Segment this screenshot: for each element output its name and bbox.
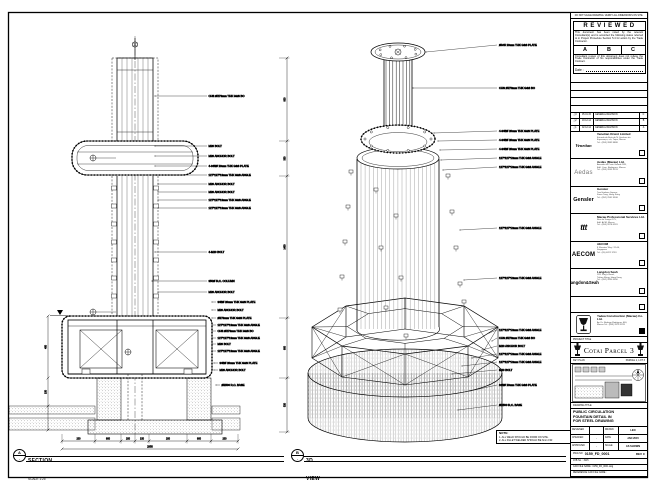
section-marker-letter: A [18,450,21,455]
clip-angle [338,308,342,311]
consultant-logo-text: ttt [580,223,587,232]
date-label: Date : [575,68,584,72]
status-checkbox [639,260,645,266]
bolt-hole [430,138,432,140]
section-callout-label: 4-M20 BOLT [209,250,225,254]
info-label: DATE [604,435,619,442]
reviewed-date-row: Date : [574,65,645,73]
info-value: AS SHOWN [619,443,647,450]
drawing-sheet: 2008002001502008002002950800350145060052… [0,0,650,488]
consultant-address: Tel : (65) 6222 3733 [597,252,646,255]
goblet-logo-icon [576,315,591,334]
dimension-value: 450 [45,344,48,349]
consultant-logo-text: Aedas [574,170,593,176]
consultant-block: VenetianVenetian Orient LimitedEstrada d… [571,132,647,160]
iso-title: 3D VIEW [306,458,320,482]
section-callout-label: M20 ANCHOR BOLT [209,290,235,294]
revision-mark: △1 [571,126,580,131]
key-plan [571,364,647,403]
dimension-value: 200 [77,438,82,441]
callout-leader [482,346,497,350]
section-callout-label: CHS Ø273mm THK G&S BO [218,329,255,333]
scale-warning-note: DO NOT SCALE DRAWING. VERIFY ALL DIMENSI… [571,13,647,19]
section-callout-label: M20 BOLT [218,342,232,346]
section-marker: A - [13,449,26,462]
consultant-address: Tel : (852) 2830 3500 [597,279,646,282]
dimension-value: 800 [106,438,111,441]
iso-callout-label: 4-345Ø 20mm THK G&S PLATE [499,129,539,133]
info-value [590,427,604,434]
status-option-a: A [574,46,597,54]
consultant-block: AedasAedas (Macau) Ltd.Avenida da Praia … [571,159,647,187]
section-callout-label: 127*127*13mm THK G&S ANGLE [218,323,261,327]
consultant-empty-block [571,297,647,313]
revision-blank-rows [571,76,647,114]
callout-leader [426,45,497,52]
section-callout-label: CHS Ø273mm THK G&S BO [209,94,246,98]
section-marker-sheet: - [14,455,25,461]
consultant-address: Tel : (853) 2878 6281 [597,224,646,227]
section-callout-label: M20 ANCHOR BOLT [218,308,244,312]
clip-angle [343,240,347,243]
reviewed-stamp-paragraph: This document has been noted by the rele… [574,31,645,45]
section-callout-label: 345Ø 20mm THK G&S PLATE [218,300,256,304]
bolt-plate [154,258,159,262]
iso-view: Ø345 20mm THK G&S PLATECHS Ø273mm THK G&… [308,43,542,442]
section-callout-label: 127*127*13mm THK G&S ANGLE [218,349,261,353]
info-row: CHECKED-DATEJAN 2015 [571,435,647,443]
revision-date: 02.12.14 [580,126,594,131]
section-callout-label: M20 ANCHOR BOLT [209,182,235,186]
bolt-plate [154,240,159,244]
info-value: LEO [619,427,647,434]
info-label: DRAWN [604,427,619,434]
truss-radial [442,306,464,314]
note-line: 2. ALL FILLET WELDED SHOULD BE 6mm FW. [499,439,570,442]
clip-angle [384,306,388,309]
bolt-hole [407,126,409,128]
dimension-value: 150 [45,389,48,394]
drawing-title: PUBLIC CIRCULATION FOUNTAIN DETAIL IN FO… [571,409,647,426]
section-title-rule2 [26,461,284,462]
clip-angle [458,282,462,285]
iso-callout-label: 345Ø 20mm THK G&S PLATE [499,383,537,387]
section-callout-label: 127*127*13mm THK G&S ANGLE [218,336,261,340]
callout-leader [440,149,497,150]
bolt-plate [112,222,117,226]
reviewed-stamp-title: R E V I E W E D [574,22,645,31]
bolt-plate [112,204,117,208]
callout-leader [443,167,497,170]
revision-by: B [639,119,647,124]
clip-angle [399,276,403,279]
consultant-address: Tel : (853) 2882 8888 [597,142,646,145]
consultant-block: tttMacau Professional Services Ltd.Rua d… [571,214,647,242]
clip-angle [374,188,378,191]
drawing-info-table: DESIGNEDDRAWNLEOCHECKED-DATEJAN 2015APPR… [571,427,647,451]
section-callout-label: Ø2500 R.C. BASE [222,383,245,387]
truss-radial [342,338,366,346]
dimension-total: 2950 [147,445,153,449]
status-option-c: C [621,46,645,54]
info-label: CHECKED [571,435,590,442]
clip-angle [394,214,398,217]
status-checkbox [639,288,645,294]
iso-title-rule [304,456,566,457]
truss-brace [312,306,346,358]
info-label: DESIGNED [571,427,590,434]
bolt-hole [424,131,426,133]
section-callout-label: 127*127*13mm THK G&S ANGLE [209,173,252,177]
compass-icon [633,370,644,381]
section-callout-label: 345Ø 20mm THK G&S PLATE [220,361,258,365]
clip-angle [340,275,344,278]
revision-description: GENERAL REVISION [594,126,639,131]
bolt-plate [112,276,117,280]
status-checkbox [639,304,645,310]
bolt-hole [387,126,389,128]
consultant-logo-text: AECOM [572,252,595,258]
callout-leader [441,158,497,160]
info-row: APPROVED-SCALEAS SHOWN [571,443,647,451]
drawing-title-line: FOR STEEL DRAWING [573,419,645,423]
info-value: - [590,443,604,450]
reviewed-stamp-paragraph2: Consultant review of this document does … [574,55,645,66]
dimension-value: 200 [166,438,171,441]
consultant-logo: ttt [571,214,596,241]
iso-callout-label: 127*127*13mm THK G&S ANGLE [499,360,542,364]
consultant-logo: AECOM [571,242,596,269]
bolt-plate [112,294,117,298]
dimension-value: 600 [284,345,287,350]
revision-blank-row [571,83,647,91]
project-ornament-icon [573,343,582,357]
key-plan-map [572,364,646,402]
contractor-logo [571,313,596,336]
revision-mark: △3 [571,113,580,118]
revision-blank-row [571,76,647,84]
bolt-plate [154,222,159,226]
drawing-number-row: DWG NO 0159_FD_0001 REV C [571,451,647,459]
section-title: SECTION [28,458,52,464]
iso-callout-label: 127*127*13mm THK G&S ANGLE [499,226,542,230]
general-notes: NOTE: 1. ALL WELD SHOULD BE FORM ON SITE… [496,430,573,444]
consultant-address: Tel : (853) 2833 3233 [597,169,646,172]
iso-callout-label: 127*127*13mm THK G&S ANGLE [499,156,542,160]
consultant-logo: Langdon&Seah [571,269,596,296]
consultant-block: GenslerGenslerTwo Harbour Square,Kwun To… [571,187,647,215]
section-callout-label: 127*127*13mm THK G&S ANGLE [209,206,252,210]
section-callout-label: M20 ANCHOR BOLT [209,154,235,158]
dimension-value: 1450 [284,244,287,250]
consultant-logo: Venetian [571,132,596,159]
bolt-plate [154,204,159,208]
cad-file-row: REFERENCE CAD FILE NAME : [571,471,647,477]
iso-marker: B - [291,449,304,462]
project-title: Cotai Parcel 3 [571,343,647,358]
dwg-rev: REV C [636,452,645,456]
consultant-blocks: VenetianVenetian Orient LimitedEstrada d… [571,132,647,297]
iso-title-rule2 [304,461,566,462]
revision-date: 05.01.15 [580,113,594,118]
consultant-address: Tel : (852) 2591 9308 [597,197,646,200]
contractor-address: Macau Tel : (853) 2878 3228 [597,324,646,327]
bolt-hole [407,149,409,151]
drawing-linework: 2008002001502008002002950800350145060052… [0,0,650,488]
consultant-logo: Aedas [571,159,596,186]
section-callout-label: 350Ø R.C. COLUMN [209,279,235,283]
consultant-logo-text: Gensler [573,197,593,203]
iso-callout-label: CHS Ø273mm THK G&S BO [499,86,536,90]
consultant-logo: Gensler [571,187,596,214]
info-label: APPROVED [571,443,590,450]
info-label: SCALE [604,443,619,450]
consultant-block: Langdon&SeahLangdon Seah1111 King's Road… [571,269,647,297]
dimension-value: 200 [223,438,228,441]
info-value: - [590,435,604,442]
clip-angle [404,334,408,337]
clip-angle [454,246,458,249]
clip-angle [379,246,383,249]
iso-callout-label: 127*127*13mm THK G&S ANGLE [499,165,542,169]
info-value: JAN 2015 [619,435,647,442]
iso-callout-label: CHS Ø273mm THK G&S BO [499,336,536,340]
iso-callout-label: M20 ANCHOR BOLT [499,344,525,348]
dwg-no-label: DWG NO [573,453,583,455]
project-name: Cotai Parcel 3 [584,346,634,355]
iso-callout-label: 127*127*13mm THK G&S ANGLE [499,352,542,356]
dimension-value: 200 [126,438,131,441]
revision-date: 18.12.14 [580,119,594,124]
section-title-rule [26,456,284,457]
iso-callout-label: 4-345Ø 20mm THK G&S PLATE [499,147,539,151]
dimension-value: 800 [284,97,287,102]
truss-brace [464,306,498,358]
callout-leader [438,140,497,141]
section-callout-label: M20 BOLT [209,144,223,148]
callout-leader [434,131,497,133]
status-checkbox [639,233,645,239]
bolt-hole [370,145,372,147]
contractor-block: Yadea Construction (Macau) Co. Ltd. Av. … [571,313,647,337]
bolt-hole [387,149,389,151]
status-checkbox [639,178,645,184]
consultant-logo-text: Langdon&Seah [571,280,599,285]
clip-angle [349,170,353,173]
section-view: 2008002001502008002002950800350145060052… [9,36,290,450]
callout-leader [492,338,497,341]
consultant-block: AECOMAECOM8 Shenton Way #11-00,Singapore… [571,242,647,270]
iso-marker-sheet: - [292,455,303,461]
dimension-value: 350 [284,156,287,161]
clip-angle [446,174,450,177]
revision-by: A [639,126,647,131]
bolt-hole [364,138,366,140]
status-checkbox [639,150,645,156]
section-scale: SCALE 1:25 [28,477,46,481]
revision-blank-row [571,91,647,99]
status-checkbox [639,205,645,211]
callout-leader [464,278,497,280]
dimension-value: 800 [197,438,202,441]
revision-blank-row [571,106,647,114]
dimension-value: 150 [140,438,145,441]
bolt-plate [112,240,117,244]
truss-radial [444,338,468,346]
bolt-plate [112,258,117,262]
callout-leader [460,228,497,230]
reviewed-status-row: A B C [574,45,645,55]
revision-mark: △2 [571,119,580,124]
project-ornament-icon [636,343,645,357]
revision-description: GENERAL REVISION [594,113,639,118]
bolt-plate [154,276,159,280]
iso-callout-label: M20 BOLT [499,368,513,372]
revision-by: C [639,113,647,118]
bolt-plate [154,294,159,298]
bolt-hole [370,131,372,133]
key-plan-parcel: PARCEL 1, LOT 3 [626,358,647,363]
title-block: DO NOT SCALE DRAWING. VERIFY ALL DIMENSI… [570,12,648,478]
iso-callout-label: 127*127*13mm THK G&S ANGLE [499,276,542,280]
status-checkbox [639,328,645,334]
section-callout-label: M20 ANCHOR BOLT [209,190,235,194]
clip-angle [346,205,350,208]
dimension-value: 520 [284,402,287,407]
iso-callout-label: 4-345Ø 20mm THK G&S PLATE [499,138,539,142]
contractor-name: Yadea Construction (Macau) Co. Ltd. [597,315,646,322]
iso-callout-label: 127*127*13mm THK G&S ANGLE [499,328,542,332]
section-callout-label: Ø273mm THK G&S PLATE [218,316,252,320]
section-callout-label: M20 ANCHOR BOLT [220,368,246,372]
clip-angle [462,300,466,303]
consultant-logo-text: Venetian [575,143,591,148]
status-option-b: B [597,46,621,54]
bolt-hole [424,145,426,147]
iso-callout-label: Ø345 20mm THK G&S PLATE [499,43,537,47]
reviewed-stamp: R E V I E W E D This document has been n… [573,21,646,74]
bolt-plate [154,186,159,190]
clip-angle [450,210,454,213]
iso-marker-letter: B [296,450,299,455]
iso-callout-label: Ø2500 R.C. BASE [499,403,522,407]
revision-table: △305.01.15GENERAL REVISIONC△218.12.14GEN… [571,113,647,132]
section-callout-label: 4-345Ø 20mm THK G&S PLATE [209,164,249,168]
section-callout-label: 127*127*13mm THK G&S ANGLE [209,198,252,202]
cad-file-rows: JOB No. : 3115CAD FILE NAME : 0159_FD_00… [571,459,647,477]
info-row: DESIGNEDDRAWNLEO [571,427,647,435]
revision-description: GENERAL REVISION [594,119,639,124]
bolt-plate [112,186,117,190]
dwg-no-value: 0159_FD_0001 [585,452,636,456]
date-fill-line [586,71,643,72]
revision-blank-row [571,98,647,106]
